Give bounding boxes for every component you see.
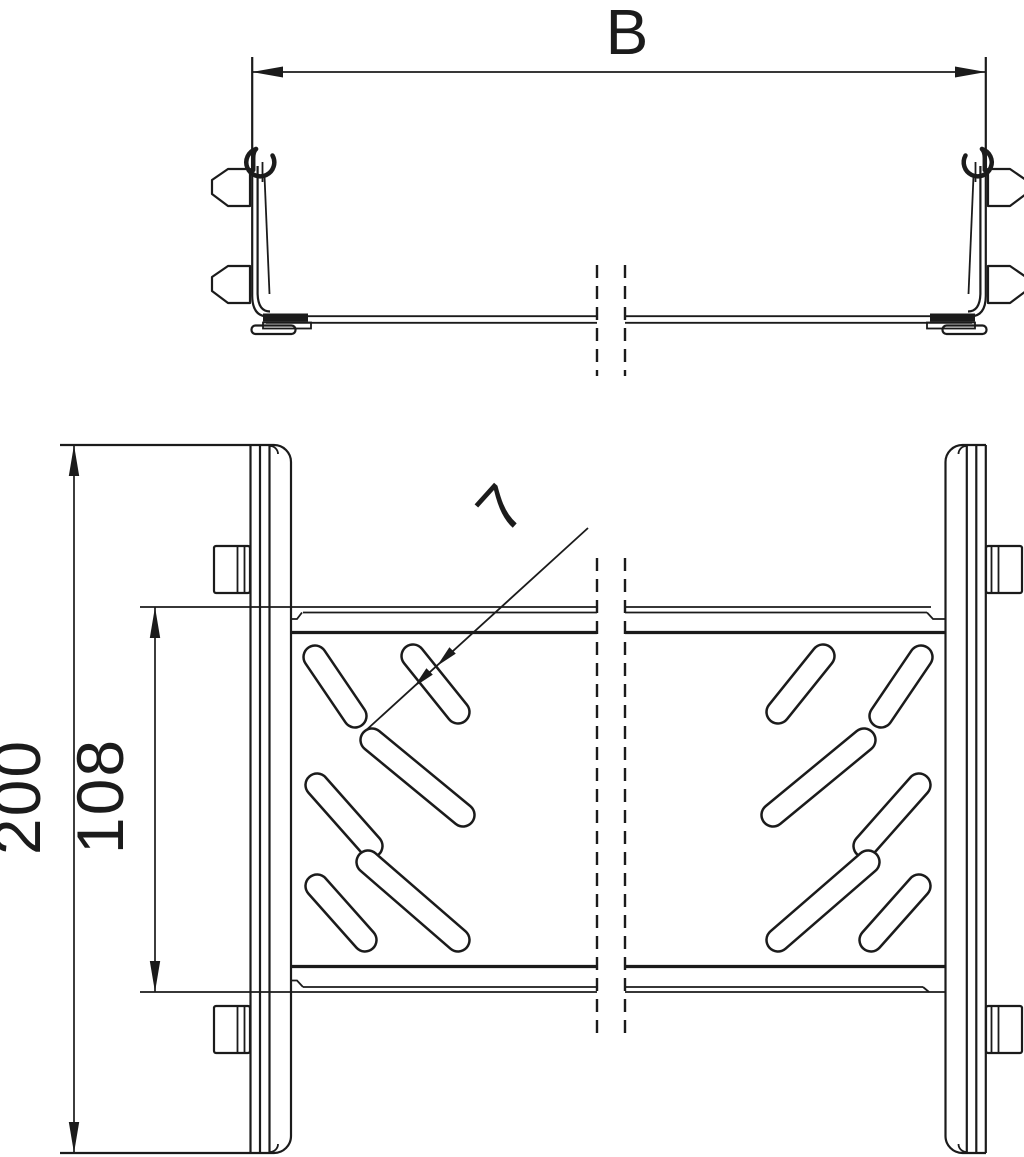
slot-field-right [773, 656, 921, 940]
rail-inner-wall [968, 166, 980, 312]
slot [372, 740, 463, 815]
cross-section-view: B [212, 0, 1024, 376]
corner-inner-arc-bottom [270, 1144, 278, 1152]
arrowhead-top [69, 445, 79, 476]
hook-curl-stem [982, 149, 985, 170]
rail-inner-wall [258, 166, 270, 312]
arrowhead-right [955, 67, 986, 78]
break-lines-plan [597, 558, 625, 1040]
slot [778, 862, 868, 940]
arrowhead-bottom [69, 1122, 79, 1153]
clamp-tab-upper [212, 169, 250, 206]
bottom-edge-step-left [291, 981, 303, 988]
clamp-tab-lower [988, 266, 1024, 303]
dimension-label-B: B [606, 0, 649, 68]
leader-line [363, 528, 588, 733]
connector-end-clamp [930, 314, 975, 322]
rail-foot [252, 326, 296, 335]
dimension-width-B: B [252, 0, 986, 78]
left-rail-profile [212, 57, 311, 334]
slot-width-callout: 7 [363, 471, 588, 733]
right-rail-plan [946, 445, 1023, 1153]
side-tab-upper [214, 546, 250, 593]
plan-view: 200 108 [0, 445, 1022, 1153]
tab-inner-lines [992, 546, 999, 593]
corner-inner-arc-top [959, 446, 967, 454]
rail-inner-diagonal [265, 176, 270, 294]
tab-inner-lines [238, 1006, 245, 1053]
break-lines-cross-section [597, 265, 625, 376]
corner-inner-arc-top [270, 446, 278, 454]
slot [317, 785, 371, 846]
side-tab-lower [986, 1006, 1022, 1053]
dimension-label-200: 200 [0, 739, 54, 855]
right-rail-profile [927, 57, 1024, 334]
slot [773, 740, 864, 815]
arrowhead-left [252, 67, 283, 78]
corner-inner-arc-bottom [959, 1144, 967, 1152]
side-tab-lower [214, 1006, 250, 1053]
top-edge-step-right [927, 613, 946, 620]
dimension-label-108: 108 [63, 738, 137, 854]
slot [865, 785, 919, 846]
bottom-sheet-right [625, 316, 972, 323]
clamp-tab-upper [988, 169, 1024, 206]
hook-curl-stem [253, 149, 256, 170]
side-tab-upper [986, 546, 1022, 593]
dimension-label-7: 7 [462, 471, 539, 546]
rail-foot [943, 326, 987, 335]
slot [368, 862, 458, 940]
rail-inner-diagonal [969, 176, 974, 294]
clamp-tab-lower [212, 266, 250, 303]
technical-drawing-canvas: B [0, 0, 1024, 1157]
tab-inner-lines [992, 1006, 999, 1053]
arrowhead-bottom [150, 961, 160, 992]
arrowhead-top [150, 607, 160, 638]
dimension-inner-108: 108 [63, 607, 160, 992]
connector-plate-edges [291, 633, 946, 967]
tab-inner-lines [238, 546, 245, 593]
slot-field-left [315, 656, 463, 940]
tray-bottom [266, 316, 972, 323]
bottom-sheet-left [266, 316, 597, 323]
top-edge-step-left [291, 613, 302, 620]
connector-end-clamp [263, 314, 308, 322]
